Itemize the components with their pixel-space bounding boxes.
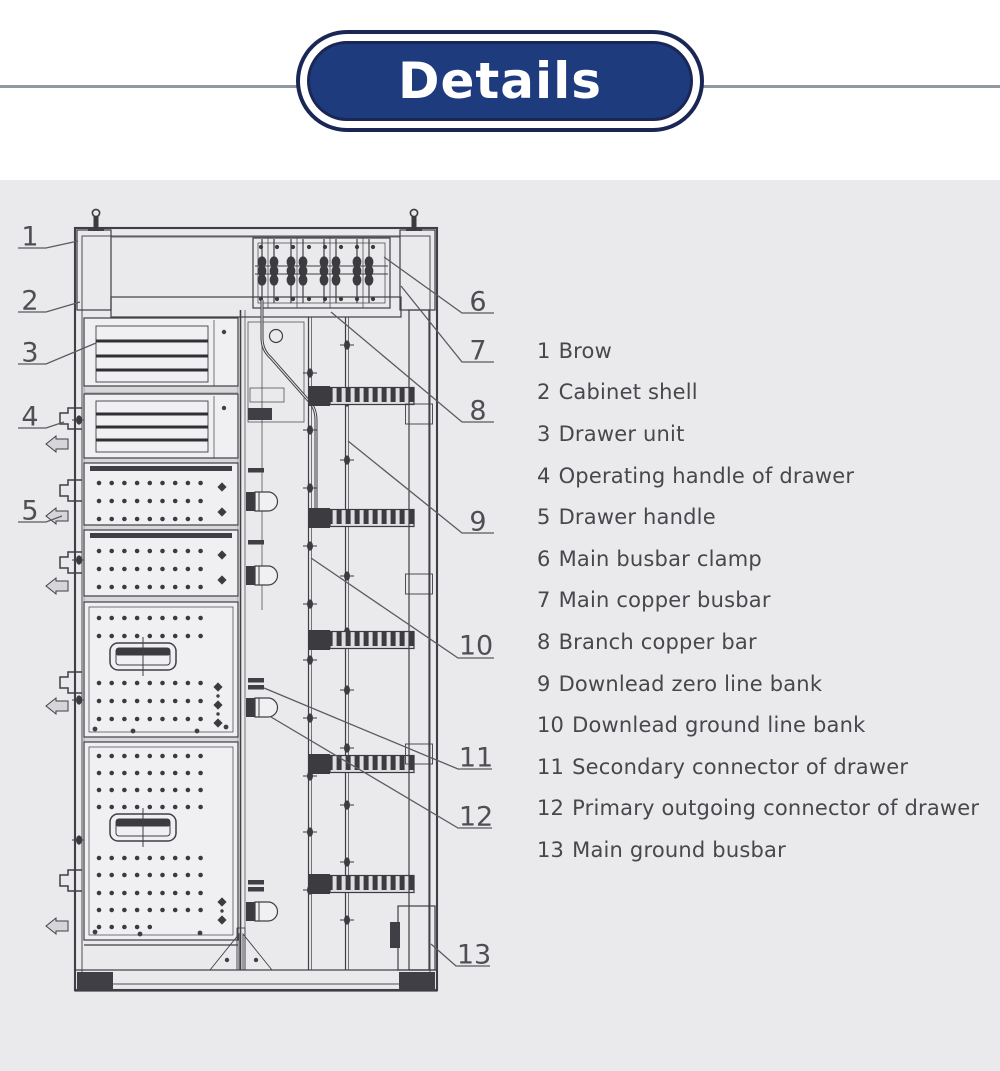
legend-item-13: 13Main ground busbar [537,829,979,871]
legend-num: 13 [537,838,564,862]
operating-handle [60,870,82,891]
drawer-unit-large-2 [84,742,238,940]
legend-label: Downlead ground line bank [572,713,865,737]
drawer-unit-large-1 [84,602,238,737]
callout-12: 12 [459,802,493,833]
legend-num: 10 [537,713,564,737]
drawer-handle [46,698,68,714]
busbar-chamber [241,300,433,970]
legend-num: 3 [537,422,551,446]
callout-4: 4 [21,402,38,433]
banner-title: Details [398,52,602,110]
details-banner-pill: Details [307,41,693,121]
drawer-unit-grille-2 [84,394,238,458]
legend-label: Main busbar clamp [559,547,762,571]
legend-label: Drawer unit [559,422,685,446]
legend-num: 4 [537,464,551,488]
callout-6: 6 [469,287,486,318]
legend-num: 12 [537,796,564,820]
legend-item-1: 1Brow [537,330,979,372]
primary-connector [246,698,277,717]
drawer-unit-perforated-2 [84,530,238,596]
lifting-eye-left [88,209,104,230]
legend-num: 9 [537,672,551,696]
legend-num: 11 [537,755,564,779]
legend-label: Drawer handle [559,505,716,529]
legend-item-7: 7Main copper busbar [537,580,979,622]
primary-connector [246,566,277,585]
drawer-unit-perforated-1 [84,463,238,525]
terminal-strip [308,630,414,650]
diagram-panel: 1 2 3 4 5 6 7 8 9 10 11 12 13 1Brow 2Cab… [0,180,1000,1071]
operating-handle [60,672,82,693]
operating-handle [60,480,82,501]
legend-label: Branch copper bar [559,630,757,654]
terminal-strip [308,508,414,528]
terminal-strip [308,874,414,894]
legend-num: 2 [537,380,551,404]
legend-item-3: 3Drawer unit [537,413,979,455]
legend-label: Brow [559,339,612,363]
callout-3: 3 [21,338,38,369]
legend-label: Primary outgoing connector of drawer [572,796,979,820]
legend-item-11: 11Secondary connector of drawer [537,746,979,788]
callout-2: 2 [21,286,38,317]
drawer-front-handle [110,637,176,676]
legend-item-6: 6Main busbar clamp [537,538,979,580]
primary-connector [246,902,277,921]
legend-num: 1 [537,339,551,363]
legend-item-10: 10Downlead ground line bank [537,704,979,746]
callout-1: 1 [21,222,38,253]
legend-label: Downlead zero line bank [559,672,823,696]
lifting-eye-right [406,209,422,230]
drawer-front-handle [110,808,176,847]
legend-label: Secondary connector of drawer [572,755,908,779]
callout-5: 5 [21,496,38,527]
drawer-mechanism [248,322,304,422]
cabinet-technical-diagram: 1 2 3 4 5 6 7 8 9 10 11 12 13 [0,180,520,1071]
callout-13: 13 [457,940,491,971]
legend-num: 5 [537,505,551,529]
legend-item-4: 4Operating handle of drawer [537,455,979,497]
legend-label: Cabinet shell [559,380,698,404]
legend-num: 8 [537,630,551,654]
terminal-strip [308,386,414,406]
callout-11: 11 [459,743,493,774]
details-banner: Details [296,30,704,132]
primary-connector [246,492,277,511]
legend-item-8: 8Branch copper bar [537,621,979,663]
drawer-handle [46,508,68,524]
drawer-unit-grille-1 [84,318,238,386]
drawer-handle [46,436,68,452]
parts-legend: 1Brow 2Cabinet shell 3Drawer unit 4Opera… [537,330,979,871]
main-ground-busbar [75,970,437,991]
legend-item-2: 2Cabinet shell [537,372,979,414]
legend-num: 7 [537,588,551,612]
callout-7: 7 [469,336,486,367]
legend-label: Operating handle of drawer [559,464,855,488]
drawer-handle [46,918,68,934]
legend-item-12: 12Primary outgoing connector of drawer [537,788,979,830]
drawer-handle [46,578,68,594]
legend-item-9: 9Downlead zero line bank [537,663,979,705]
secondary-connector [248,678,264,683]
callout-9: 9 [469,507,486,538]
legend-label: Main ground busbar [572,838,786,862]
callout-10: 10 [459,631,493,662]
legend-num: 6 [537,547,551,571]
legend-label: Main copper busbar [559,588,771,612]
page-header: Details [0,0,1000,180]
legend-item-5: 5Drawer handle [537,496,979,538]
callout-8: 8 [469,396,486,427]
